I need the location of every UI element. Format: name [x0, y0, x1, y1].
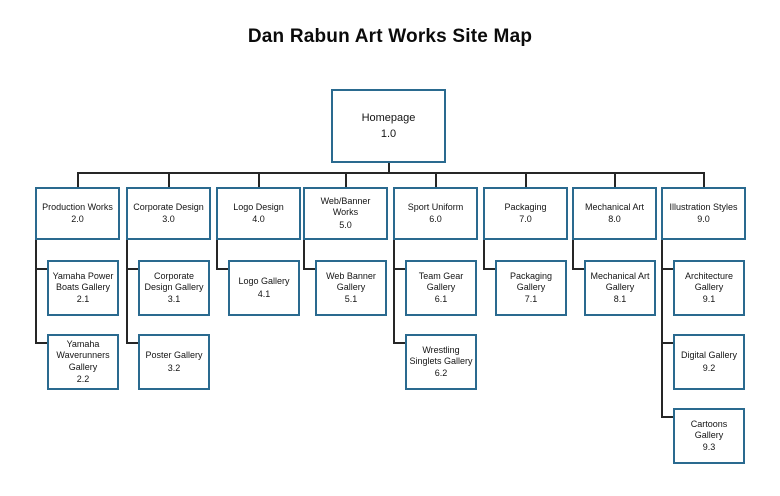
sitemap-node-homepage: Homepage1.0: [331, 89, 446, 163]
node-label: Sport Uniform: [408, 202, 464, 213]
node-label: Corporate Design: [133, 202, 204, 213]
node-number: 3.2: [168, 363, 181, 374]
node-number: 2.2: [77, 374, 90, 385]
connector-child-stub: [216, 268, 228, 270]
node-label: Logo Gallery: [238, 276, 289, 287]
sitemap-node-2-0: Production Works2.0: [35, 187, 120, 240]
node-number: 6.0: [429, 214, 442, 225]
node-number: 6.1: [435, 294, 448, 305]
sitemap-node-6-1: Team Gear Gallery6.1: [405, 260, 477, 316]
connector-child-stub: [126, 342, 138, 344]
connector-branch-vertical: [661, 240, 663, 418]
node-number: 6.2: [435, 368, 448, 379]
connector-child-stub: [661, 342, 673, 344]
node-number: 7.1: [525, 294, 538, 305]
node-label: Yamaha Waverunners Gallery: [51, 339, 115, 373]
connector-branch-vertical: [126, 240, 128, 344]
sitemap-node-2-1: Yamaha Power Boats Gallery2.1: [47, 260, 119, 316]
connector-section-stub: [345, 172, 347, 187]
connector-branch-vertical: [393, 240, 395, 344]
node-label: Yamaha Power Boats Gallery: [51, 271, 115, 294]
node-number: 8.1: [614, 294, 627, 305]
sitemap-node-9-2: Digital Gallery9.2: [673, 334, 745, 390]
connector-section-stub: [168, 172, 170, 187]
node-number: 2.1: [77, 294, 90, 305]
node-number: 7.0: [519, 214, 532, 225]
connector-child-stub: [303, 268, 315, 270]
sitemap-node-7-1: Packaging Gallery7.1: [495, 260, 567, 316]
connector-child-stub: [572, 268, 584, 270]
sitemap-node-8-1: Mechanical Art Gallery8.1: [584, 260, 656, 316]
node-label: Web/Banner Works: [307, 196, 384, 219]
sitemap-node-5-0: Web/Banner Works5.0: [303, 187, 388, 240]
sitemap-node-6-0: Sport Uniform6.0: [393, 187, 478, 240]
connector-child-stub: [35, 268, 47, 270]
node-number: 3.1: [168, 294, 181, 305]
sitemap-node-6-2: Wrestling Singlets Gallery6.2: [405, 334, 477, 390]
node-label: Packaging: [504, 202, 546, 213]
connector-branch-vertical: [303, 240, 305, 270]
connector-branch-vertical: [35, 240, 37, 344]
connector-branch-vertical: [572, 240, 574, 270]
node-number: 9.0: [697, 214, 710, 225]
node-label: Production Works: [42, 202, 113, 213]
sitemap-node-3-0: Corporate Design3.0: [126, 187, 211, 240]
node-label: Team Gear Gallery: [409, 271, 473, 294]
node-number: 4.1: [258, 289, 271, 300]
sitemap-node-3-1: Corporate Design Gallery3.1: [138, 260, 210, 316]
node-number: 9.3: [703, 442, 716, 453]
connector-branch-vertical: [483, 240, 485, 270]
node-label: Wrestling Singlets Gallery: [409, 345, 473, 368]
connector-section-stub: [435, 172, 437, 187]
sitemap-node-4-0: Logo Design4.0: [216, 187, 301, 240]
node-label: Logo Design: [233, 202, 284, 213]
sitemap-node-2-2: Yamaha Waverunners Gallery2.2: [47, 334, 119, 390]
node-number: 2.0: [71, 214, 84, 225]
connector-branch-vertical: [216, 240, 218, 270]
node-label: Digital Gallery: [681, 350, 737, 361]
connector-child-stub: [393, 268, 405, 270]
sitemap-node-3-2: Poster Gallery3.2: [138, 334, 210, 390]
node-number: 5.0: [339, 220, 352, 231]
connector-section-stub: [77, 172, 79, 187]
sitemap-node-9-0: Illustration Styles9.0: [661, 187, 746, 240]
node-number: 3.0: [162, 214, 175, 225]
page-title: Dan Rabun Art Works Site Map: [0, 26, 780, 48]
sitemap-node-9-3: Cartoons Gallery9.3: [673, 408, 745, 464]
sitemap-node-5-1: Web Banner Gallery5.1: [315, 260, 387, 316]
node-number: 4.0: [252, 214, 265, 225]
node-number: 5.1: [345, 294, 358, 305]
node-label: Homepage: [362, 111, 416, 126]
connector-child-stub: [393, 342, 405, 344]
node-label: Illustration Styles: [669, 202, 737, 213]
node-label: Architecture Gallery: [677, 271, 741, 294]
node-number: 9.2: [703, 363, 716, 374]
node-label: Poster Gallery: [145, 350, 202, 361]
node-label: Corporate Design Gallery: [142, 271, 206, 294]
connector-child-stub: [126, 268, 138, 270]
connector-child-stub: [483, 268, 495, 270]
sitemap-canvas: Dan Rabun Art Works Site Map Homepage1.0…: [0, 0, 780, 496]
node-label: Web Banner Gallery: [319, 271, 383, 294]
node-number: 8.0: [608, 214, 621, 225]
node-label: Mechanical Art: [585, 202, 644, 213]
node-number: 9.1: [703, 294, 716, 305]
node-number: 1.0: [381, 127, 396, 142]
node-label: Mechanical Art Gallery: [588, 271, 652, 294]
connector-child-stub: [35, 342, 47, 344]
node-label: Packaging Gallery: [499, 271, 563, 294]
sitemap-node-8-0: Mechanical Art8.0: [572, 187, 657, 240]
sitemap-node-4-1: Logo Gallery4.1: [228, 260, 300, 316]
sitemap-node-9-1: Architecture Gallery9.1: [673, 260, 745, 316]
connector-section-stub: [258, 172, 260, 187]
sitemap-node-7-0: Packaging7.0: [483, 187, 568, 240]
connector-rail: [77, 172, 705, 174]
connector-child-stub: [661, 268, 673, 270]
connector-section-stub: [614, 172, 616, 187]
connector-child-stub: [661, 416, 673, 418]
connector-section-stub: [703, 172, 705, 187]
node-label: Cartoons Gallery: [677, 419, 741, 442]
connector-section-stub: [525, 172, 527, 187]
